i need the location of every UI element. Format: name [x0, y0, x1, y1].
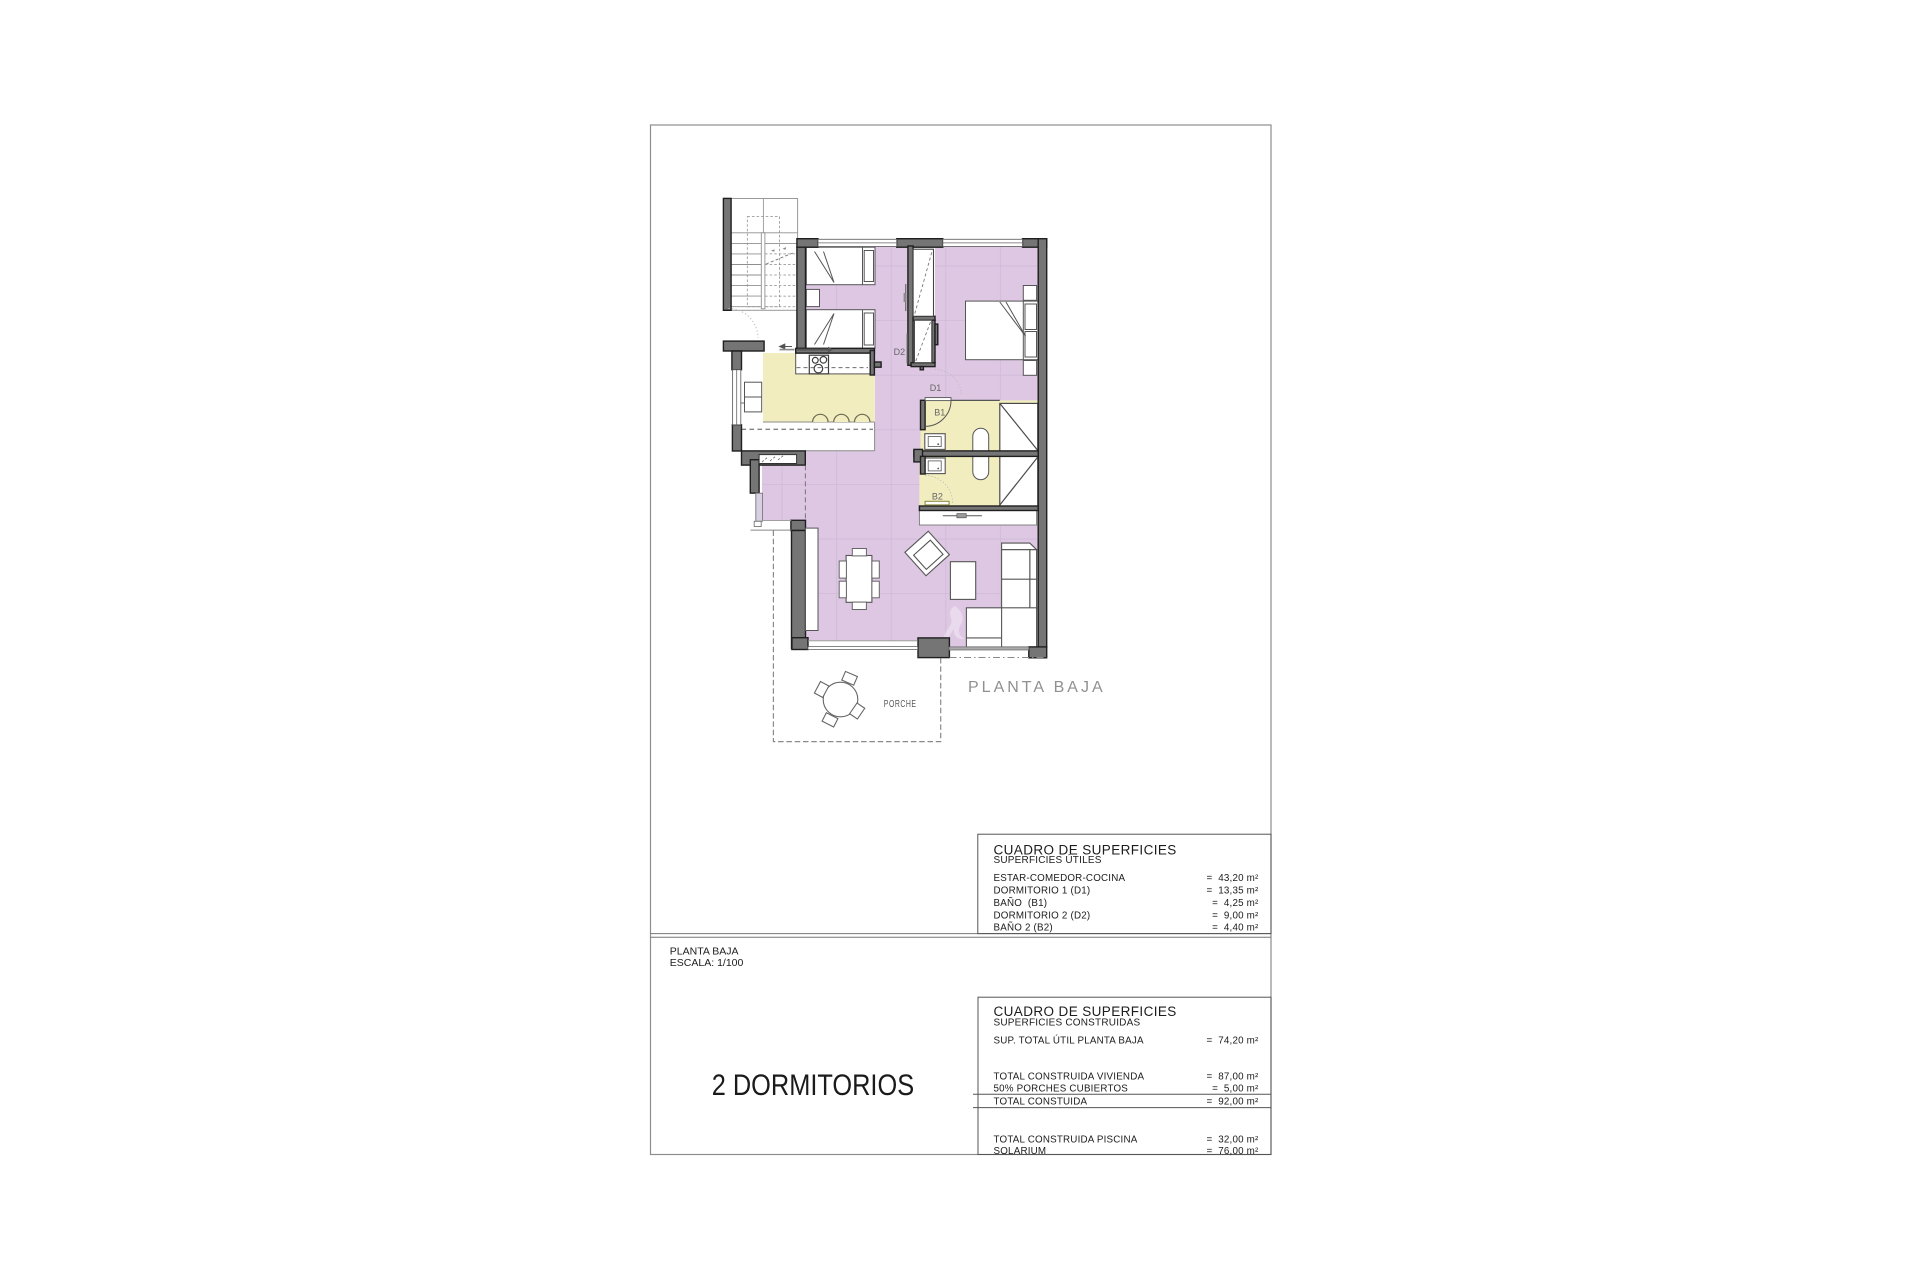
svg-text:SUP. TOTAL ÚTIL PLANTA BAJA: SUP. TOTAL ÚTIL PLANTA BAJA [994, 1036, 1144, 1047]
svg-text:= 74,20 m²: = 74,20 m² [1206, 1036, 1259, 1047]
svg-text:TOTAL CONSTRUIDA PISCINA: TOTAL CONSTRUIDA PISCINA [994, 1134, 1138, 1145]
svg-text:SOLARIUM: SOLARIUM [994, 1146, 1047, 1157]
svg-text:D1: D1 [930, 383, 942, 393]
svg-text:ESTAR-COMEDOR-COCINA: ESTAR-COMEDOR-COCINA [994, 873, 1126, 884]
svg-text:PLANTA BAJA: PLANTA BAJA [670, 945, 739, 957]
svg-text:= 92,00 m²: = 92,00 m² [1206, 1097, 1259, 1108]
svg-text:BAÑO 2 (B2): BAÑO 2 (B2) [994, 923, 1053, 934]
svg-text:SUPERFICIES ÚTILES: SUPERFICIES ÚTILES [994, 853, 1102, 866]
svg-text:DORMITORIO 1 (D1): DORMITORIO 1 (D1) [994, 886, 1091, 897]
svg-text:= 5,00 m²: = 5,00 m² [1212, 1084, 1259, 1095]
svg-text:50% PORCHES CUBIERTOS: 50% PORCHES CUBIERTOS [994, 1084, 1129, 1095]
svg-text:= 4,40 m²: = 4,40 m² [1212, 923, 1259, 934]
svg-text:= 76,00 m²: = 76,00 m² [1206, 1146, 1259, 1157]
svg-text:BAÑO (B1): BAÑO (B1) [994, 898, 1048, 909]
svg-text:TOTAL CONSTRUIDA VIVIENDA: TOTAL CONSTRUIDA VIVIENDA [994, 1072, 1145, 1083]
svg-text:SUPERFICIES CONSTRUIDAS: SUPERFICIES CONSTRUIDAS [994, 1017, 1141, 1028]
svg-text:PORCHE: PORCHE [884, 698, 917, 710]
svg-text:D2: D2 [894, 347, 906, 357]
svg-text:2 DORMITORIOS: 2 DORMITORIOS [712, 1068, 914, 1101]
svg-text:= 43,20 m²: = 43,20 m² [1206, 873, 1259, 884]
svg-text:PLANTA BAJA: PLANTA BAJA [968, 679, 1106, 696]
svg-text:= 13,35 m²: = 13,35 m² [1206, 886, 1259, 897]
svg-text:= 32,00 m²: = 32,00 m² [1206, 1134, 1259, 1145]
svg-text:ESCALA: 1/100: ESCALA: 1/100 [670, 957, 744, 969]
svg-text:= 4,25 m²: = 4,25 m² [1212, 898, 1259, 909]
svg-text:B1: B1 [934, 408, 945, 418]
svg-text:B2: B2 [932, 492, 943, 502]
svg-text:= 87,00 m²: = 87,00 m² [1206, 1072, 1259, 1083]
svg-text:= 9,00 m²: = 9,00 m² [1212, 910, 1259, 921]
svg-text:DORMITORIO 2 (D2): DORMITORIO 2 (D2) [994, 910, 1091, 921]
svg-text:TOTAL CONSTUIDA: TOTAL CONSTUIDA [994, 1097, 1088, 1108]
